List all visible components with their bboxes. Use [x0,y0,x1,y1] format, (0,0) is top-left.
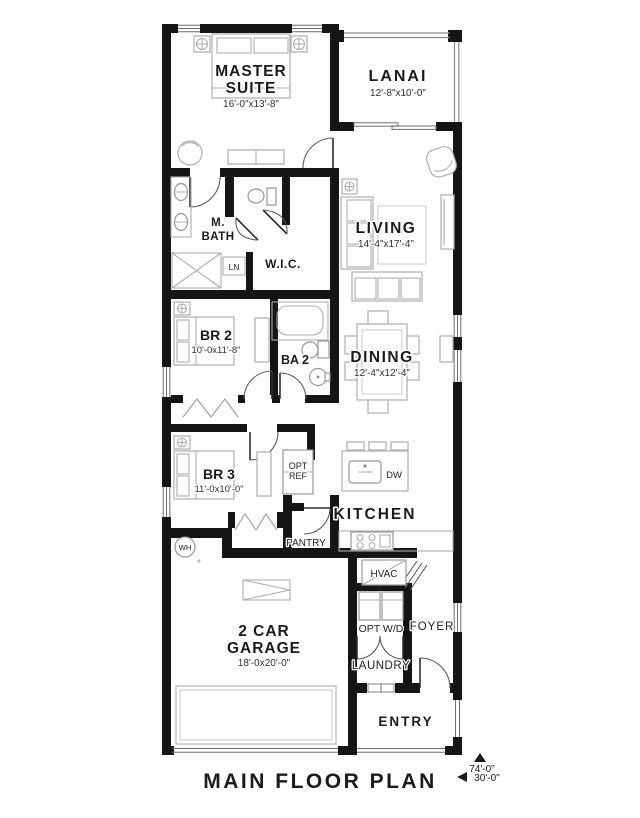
label-dw: DW [386,470,402,481]
br2-nightstand [174,302,190,315]
label-dining-dims: 12'-4"x12'-4" [354,368,410,379]
label-lanai: LANAI [369,68,428,85]
label-dining: DINING [350,349,413,366]
floor-plan-page: MASTER SUITE 16'-0"x13'-8" LANAI 12'-8"x… [0,0,640,818]
label-entry: ENTRY [378,714,433,729]
window-dining-2 [453,350,462,382]
label-pantry: PANTRY [286,538,326,549]
window-master-2 [292,24,322,33]
toilet-room-door [236,218,258,240]
window-master-1 [178,24,200,33]
garage-door [172,686,338,752]
island-sink [349,461,381,483]
garage-attic-access [243,580,290,600]
label-optref-line2: REF [289,471,308,481]
interior-walls [162,33,462,755]
br3-nightstand [174,436,190,449]
stove [351,532,393,550]
label-br3: BR 3 [203,466,235,482]
label-br2: BR 2 [200,327,232,343]
br3-dresser [257,452,271,496]
label-living: LIVING [356,220,417,237]
mbath-toilet [248,188,276,205]
br2-dresser [255,318,269,362]
br3-closet-bifold [235,514,277,530]
washer [359,592,380,620]
plan-title: MAIN FLOOR PLAN [203,770,436,793]
label-optref-line1: OPT [289,461,308,471]
north-arrow-icon [474,753,486,762]
laundry-entry-door [368,684,394,692]
plan-annotations: MAIN FLOOR PLAN 74'-0" 30'-0" [203,753,500,793]
label-mbath-line1: M. [211,217,225,229]
window-br3 [162,487,171,517]
master-nightstand-left [194,36,210,52]
master-bench [228,150,284,164]
label-master-dims: 16'-0"x13'-8" [223,99,279,110]
label-br3-dims: 11'-0x10'-0" [194,484,243,495]
window-br2 [162,367,171,397]
label-master-line1: MASTER [215,63,286,80]
mbath-vanity [171,177,191,237]
ba2-door [280,373,306,399]
exterior-walls [162,24,462,755]
label-garage-dims: 18'-0x20'-0" [238,658,291,669]
label-linen: LN [229,262,240,272]
ba2-tub [272,302,328,340]
label-lanai-dims: 12'-8"x10'-0" [370,88,426,99]
label-garage-line2: GARAGE [227,640,301,657]
window-foyer [453,603,462,632]
label-living-dims: 14'-4"x17'-4" [358,239,414,250]
dining-buffet [440,336,453,362]
ba2-sink [310,369,331,386]
dryer [382,592,403,620]
label-br2-dims: 10'-0x11'-8" [191,345,240,356]
mbath-shower [172,253,221,288]
label-master-line2: SUITE [226,80,277,97]
label-ba2: BA 2 [281,353,309,367]
living-end-table [342,179,357,194]
front-door [420,658,450,688]
label-wh: WH [179,543,192,552]
pantry-door [304,508,330,534]
laundry-double-doors [357,636,403,659]
master-chair [178,141,202,165]
label-foyer: FOYER [410,621,455,633]
west-arrow-icon [457,772,467,782]
lanai-slider-door [354,122,436,131]
living-sofa-2 [352,272,422,301]
label-hvac: HVAC [370,569,397,580]
label-garage-line1: 2 CAR [238,623,290,640]
tv-console [441,195,454,249]
master-door [303,138,333,168]
label-laundry: LAUNDRY [352,660,410,672]
dim-width: 30'-0" [474,773,500,784]
master-nightstand-right [291,36,307,52]
floor-plan-drawing: MASTER SUITE 16'-0"x13'-8" LANAI 12'-8"x… [0,0,640,818]
br2-door [244,371,272,399]
label-kitchen: KITCHEN [334,506,417,523]
bar-stools [347,442,408,450]
mbath-door [190,177,220,207]
br2-closet-bifold [183,399,238,417]
label-optwd: OPT W/D [359,623,404,635]
label-wic: W.I.C. [265,257,301,271]
window-dining-1 [453,315,462,337]
label-mbath-line2: BATH [201,231,234,243]
